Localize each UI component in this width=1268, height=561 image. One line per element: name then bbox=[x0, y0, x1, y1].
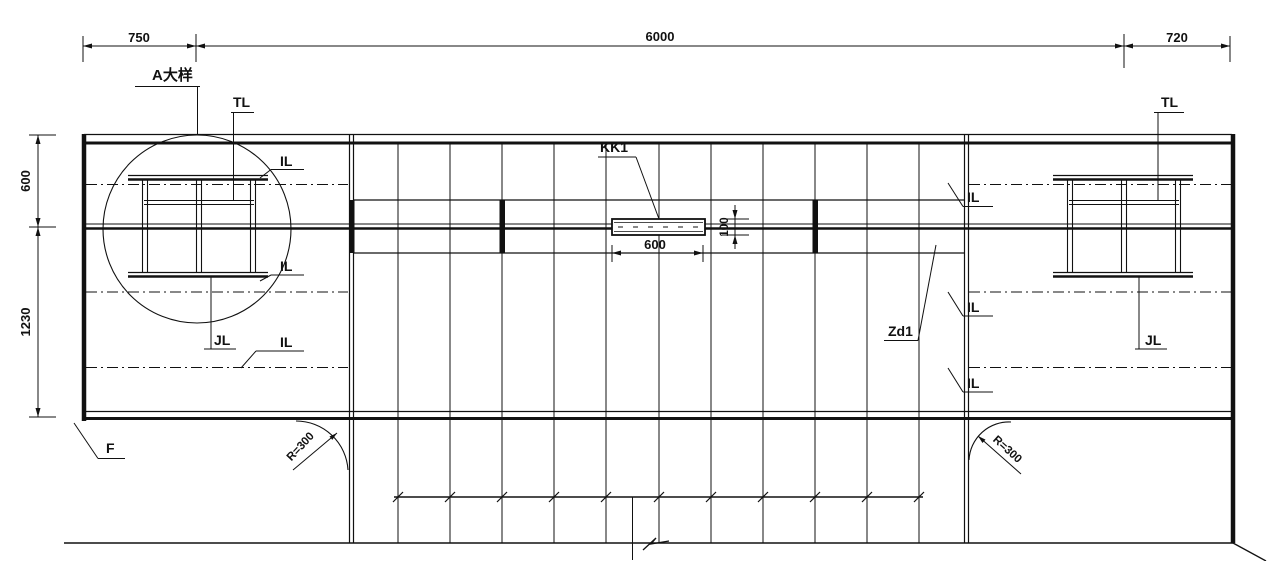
il-label-right-3: IL bbox=[967, 375, 980, 391]
side-dim-upper-value: 600 bbox=[18, 170, 33, 192]
zd1-label: Zd1 bbox=[888, 323, 913, 339]
right-ladder-structure bbox=[1053, 176, 1193, 277]
top-dimension-chain: 750 6000 720 bbox=[83, 29, 1230, 68]
annotation-labels: A大样 TL TL IL IL JL IL bbox=[74, 66, 1184, 459]
tl-label-left: TL bbox=[233, 94, 251, 110]
jl-label-left: JL bbox=[214, 332, 231, 348]
jl-label-right: JL bbox=[1145, 332, 1162, 348]
kk1-label: KK1 bbox=[600, 139, 628, 155]
il-label-left-bottom: IL bbox=[280, 334, 293, 350]
band-thick-posts bbox=[349, 200, 818, 253]
top-dim-left-value: 750 bbox=[128, 30, 150, 45]
ground-cut-diagonal bbox=[1233, 543, 1266, 561]
il-label-left-middle: IL bbox=[280, 258, 293, 274]
il-label-right-2: IL bbox=[967, 299, 980, 315]
corner-arc-right: R=300 bbox=[969, 422, 1024, 474]
drawing-canvas: 750 6000 720 600 1230 bbox=[0, 0, 1268, 561]
kk1-height-dim-value: 100 bbox=[719, 217, 731, 236]
mullion-grid bbox=[349, 143, 919, 543]
radius-label-right: R=300 bbox=[990, 434, 1023, 466]
kk1-width-dim-value: 600 bbox=[644, 237, 666, 252]
top-dim-right-value: 720 bbox=[1166, 30, 1188, 45]
il-label-left-top: IL bbox=[280, 153, 293, 169]
il-label-right-1: IL bbox=[967, 189, 980, 205]
left-dimension-chain: 600 1230 bbox=[18, 135, 56, 417]
side-dim-lower-value: 1230 bbox=[18, 308, 33, 337]
radius-label-left: R=300 bbox=[285, 430, 317, 463]
break-mark bbox=[643, 538, 669, 550]
cad-elevation-drawing: 750 6000 720 600 1230 bbox=[0, 0, 1268, 561]
corner-arc-left: R=300 bbox=[285, 421, 348, 470]
f-label: F bbox=[106, 440, 115, 456]
tl-label-right: TL bbox=[1161, 94, 1179, 110]
top-dim-middle-value: 6000 bbox=[646, 29, 675, 44]
detail-a-label: A大样 bbox=[152, 66, 193, 84]
